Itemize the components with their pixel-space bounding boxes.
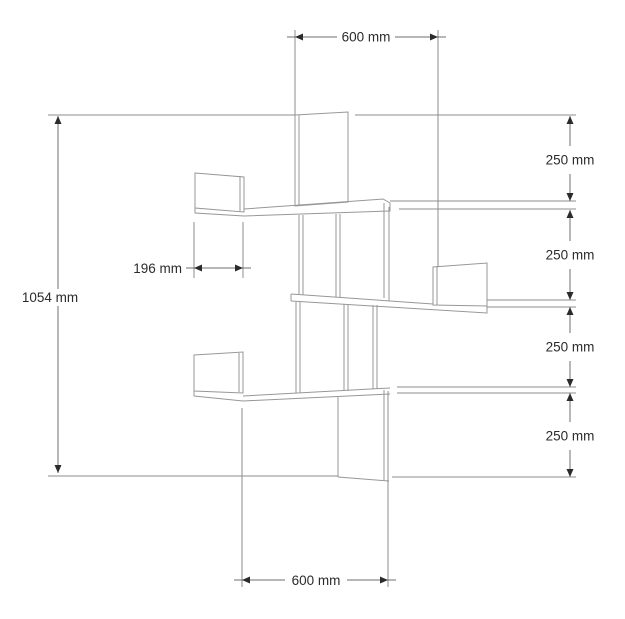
arrow-down-icon [567,193,574,201]
arrow-down-icon [55,465,62,473]
arrow-right-icon [430,34,438,41]
bottom-back-panel [338,390,389,481]
arrow-up-icon [55,116,62,124]
arrow-right-icon [235,265,243,272]
dimension-shelf-spacing-1: 250 mm [546,116,595,201]
dimension-label-spacing-4: 250 mm [546,429,595,444]
arrow-right-icon [380,577,388,584]
arrow-up-icon [567,393,574,401]
dimension-label-overall-height: 1054 mm [22,290,78,305]
dimension-shelf-depth: 196 mm [133,261,251,276]
dimension-label-spacing-1: 250 mm [546,153,595,168]
dimension-shelf-spacing-4: 250 mm [546,393,595,477]
lower-dividers [296,302,377,393]
dimension-shelf-spacing-2: 250 mm [546,210,595,300]
shelf-unit-outline [194,112,487,481]
arrow-left-icon [295,34,303,41]
middle-side-panel [384,203,389,301]
dimension-label-shelf-depth: 196 mm [133,261,182,276]
upper-dividers [299,214,340,297]
arrow-left-icon [242,577,250,584]
dimension-label-top-width: 600 mm [342,30,391,45]
arrow-down-icon [567,379,574,387]
lower-shelf [194,352,390,401]
dimension-label-spacing-2: 250 mm [546,248,595,263]
top-back-panel [295,112,348,206]
dimension-shelf-spacing-3: 250 mm [546,307,595,387]
arrow-up-icon [567,307,574,315]
upper-shelf [195,173,390,216]
arrow-down-icon [567,292,574,300]
arrow-left-icon [194,265,202,272]
dimension-drawing-canvas: 600 mm 1054 mm 250 mm 250 mm 250 mm 250 [0,0,625,619]
arrow-down-icon [567,469,574,477]
dimension-label-spacing-3: 250 mm [546,340,595,355]
dimension-bottom-width: 600 mm [234,573,396,588]
arrow-up-icon [567,210,574,218]
dimension-label-bottom-width: 600 mm [292,573,341,588]
dimension-overall-height: 1054 mm [22,116,78,473]
dimension-top-width: 600 mm [287,30,446,45]
corner-shelf-technical-drawing: 600 mm 1054 mm 250 mm 250 mm 250 mm 250 [0,0,625,619]
arrow-up-icon [567,116,574,124]
